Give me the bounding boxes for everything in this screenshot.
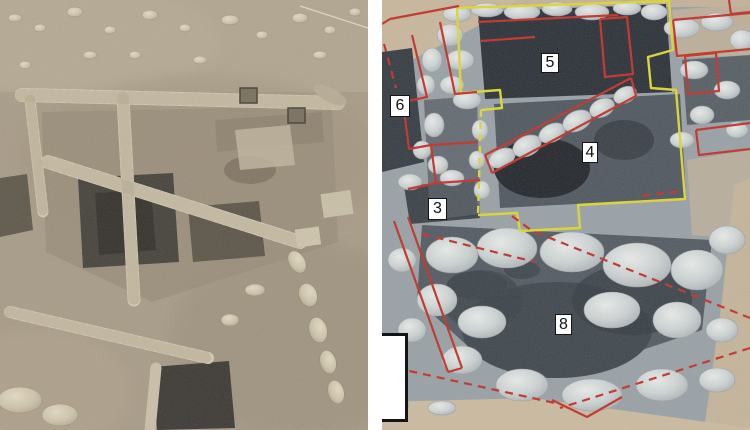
- right-photo-panel: 5 6 4 3 8: [382, 0, 750, 430]
- figure-photo-pair: 5 6 4 3 8: [0, 0, 750, 430]
- left-photo-panel: [0, 0, 368, 430]
- area-label-6: 6: [390, 95, 410, 117]
- area-label-3: 3: [428, 198, 447, 220]
- area-label-8: 8: [555, 314, 572, 335]
- inset-box: [382, 333, 408, 422]
- left-aerial-photo: [0, 0, 368, 430]
- area-label-5: 5: [541, 53, 559, 73]
- area-label-4: 4: [582, 142, 598, 163]
- panel-divider: [368, 0, 382, 430]
